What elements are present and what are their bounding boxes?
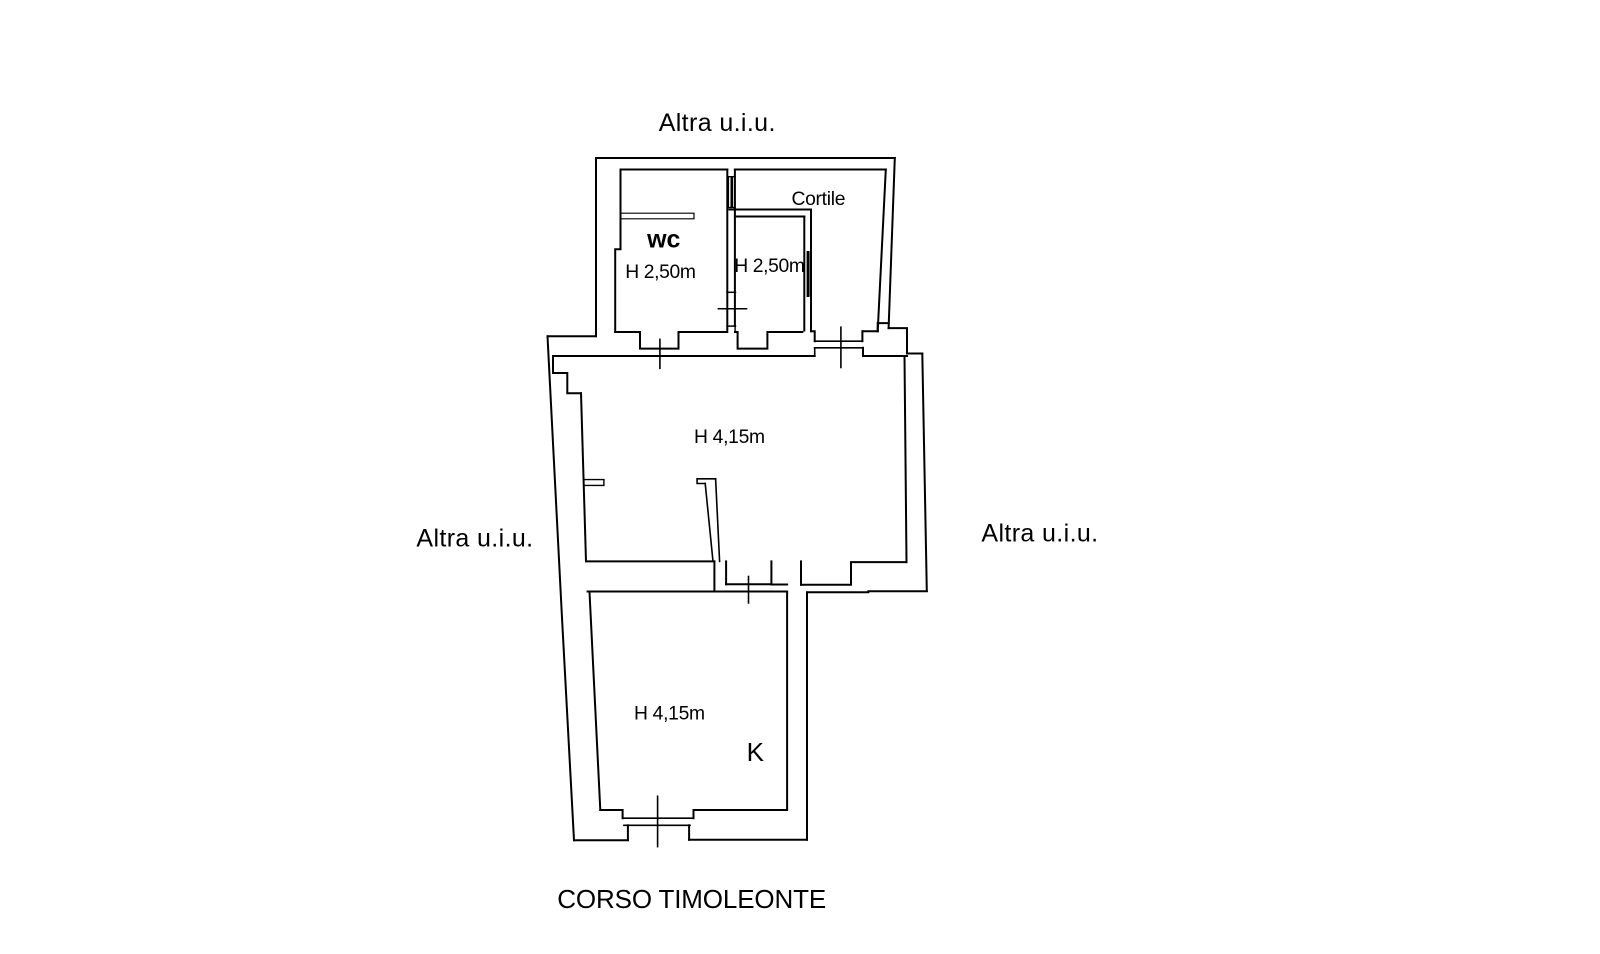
- svg-text:Cortile: Cortile: [792, 189, 846, 210]
- svg-text:Altra u.i.u.: Altra u.i.u.: [981, 520, 1098, 548]
- svg-text:H 4,15m: H 4,15m: [634, 704, 705, 725]
- svg-text:H 2,50m: H 2,50m: [734, 256, 804, 277]
- svg-text:Altra u.i.u.: Altra u.i.u.: [416, 525, 533, 553]
- svg-text:H 4,15m: H 4,15m: [694, 427, 765, 448]
- svg-text:K: K: [747, 737, 765, 767]
- svg-text:wc: wc: [646, 225, 680, 253]
- svg-text:Altra u.i.u.: Altra u.i.u.: [659, 109, 776, 137]
- svg-text:H 2,50m: H 2,50m: [625, 262, 695, 283]
- svg-text:CORSO TIMOLEONTE: CORSO TIMOLEONTE: [557, 884, 826, 914]
